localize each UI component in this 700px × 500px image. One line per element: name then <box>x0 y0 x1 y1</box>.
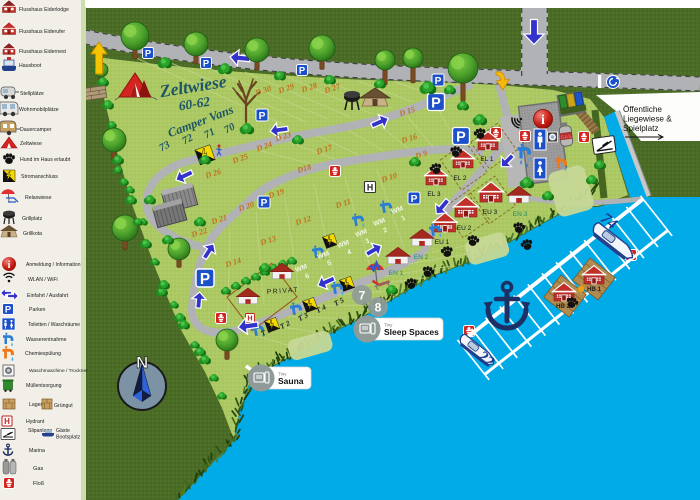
svg-text:Chemiespülung: Chemiespülung <box>25 351 61 357</box>
svg-text:Öffentliche: Öffentliche <box>623 104 662 114</box>
svg-text:EL 2: EL 2 <box>453 175 467 182</box>
svg-text:P: P <box>261 198 268 209</box>
svg-text:Sauna: Sauna <box>278 376 304 386</box>
svg-text:Gäste: Gäste <box>56 428 70 434</box>
svg-text:Grillkota: Grillkota <box>23 231 42 237</box>
svg-text:Flusshaus Eiderlodge: Flusshaus Eiderlodge <box>19 7 69 13</box>
svg-text:Anmeldung / Information: Anmeldung / Information <box>26 262 81 268</box>
svg-text:Hydrant: Hydrant <box>26 419 45 425</box>
svg-text:Grüngut: Grüngut <box>54 403 73 409</box>
svg-text:i: i <box>541 113 545 128</box>
svg-text:P: P <box>435 76 442 87</box>
svg-text:EN 2: EN 2 <box>414 254 429 261</box>
svg-text:Sleep Spaces: Sleep Spaces <box>384 327 439 337</box>
svg-text:P: P <box>299 66 305 76</box>
svg-text:Wohnmobilplätze: Wohnmobilplätze <box>19 107 59 113</box>
svg-text:i: i <box>8 260 11 271</box>
svg-text:EN 1: EN 1 <box>389 270 404 277</box>
svg-text:P: P <box>259 111 266 122</box>
svg-text:P: P <box>203 59 209 69</box>
svg-text:8: 8 <box>375 301 382 315</box>
svg-text:N: N <box>136 353 148 372</box>
svg-text:Marina: Marina <box>29 448 45 454</box>
svg-text:P: P <box>5 305 11 315</box>
svg-text:P: P <box>200 271 210 288</box>
svg-text:HB 1: HB 1 <box>587 286 602 293</box>
svg-text:Lager: Lager <box>29 402 43 408</box>
svg-text:Stromanschluss: Stromanschluss <box>21 174 58 180</box>
svg-text:H: H <box>4 417 10 426</box>
svg-text:EN 3: EN 3 <box>513 211 528 218</box>
svg-text:P: P <box>431 95 441 111</box>
svg-text:Floß: Floß <box>33 481 45 487</box>
svg-text:Gas: Gas <box>33 466 43 472</box>
svg-text:EL 3: EL 3 <box>427 191 441 198</box>
svg-text:EL 1: EL 1 <box>480 156 494 163</box>
svg-text:Hund im Haus erlaubt: Hund im Haus erlaubt <box>20 157 71 163</box>
svg-text:H: H <box>367 182 373 192</box>
svg-text:Flusshaus Eidernest: Flusshaus Eidernest <box>19 49 67 55</box>
svg-text:Spielplatz: Spielplatz <box>623 124 659 133</box>
svg-text:Dauercamper: Dauercamper <box>20 127 52 133</box>
svg-text:Parken: Parken <box>29 307 46 313</box>
svg-text:P: P <box>145 49 151 59</box>
svg-text:EU 3: EU 3 <box>483 209 498 216</box>
svg-text:7: 7 <box>359 289 366 303</box>
svg-text:Relaxwiese: Relaxwiese <box>25 195 52 201</box>
svg-text:P: P <box>411 194 418 205</box>
svg-text:Liegewiese &: Liegewiese & <box>623 115 672 124</box>
svg-text:P: P <box>456 129 466 145</box>
svg-text:EU 2: EU 2 <box>457 225 472 232</box>
svg-text:Wasserentnahme: Wasserentnahme <box>26 337 67 343</box>
svg-text:Einfahrt / Ausfahrt: Einfahrt / Ausfahrt <box>27 293 69 299</box>
svg-text:Waschmaschine / Trockner: Waschmaschine / Trockner <box>29 368 88 374</box>
svg-text:WLAN / WiFi: WLAN / WiFi <box>28 277 58 283</box>
svg-text:EU 1: EU 1 <box>435 239 450 246</box>
svg-text:Hausboot: Hausboot <box>19 63 42 69</box>
svg-text:H: H <box>247 314 252 323</box>
svg-text:Toiletten / Waschräume: Toiletten / Waschräume <box>28 322 80 328</box>
svg-text:Zeltwiese: Zeltwiese <box>20 141 42 147</box>
svg-text:Müllentsorgung: Müllentsorgung <box>26 383 62 389</box>
svg-text:Stellplätze: Stellplätze <box>20 91 44 97</box>
svg-text:Flusshaus Eiderufer: Flusshaus Eiderufer <box>19 29 65 35</box>
svg-text:Grillplatz: Grillplatz <box>22 216 43 222</box>
svg-text:Bootsplatz: Bootsplatz <box>56 435 81 441</box>
